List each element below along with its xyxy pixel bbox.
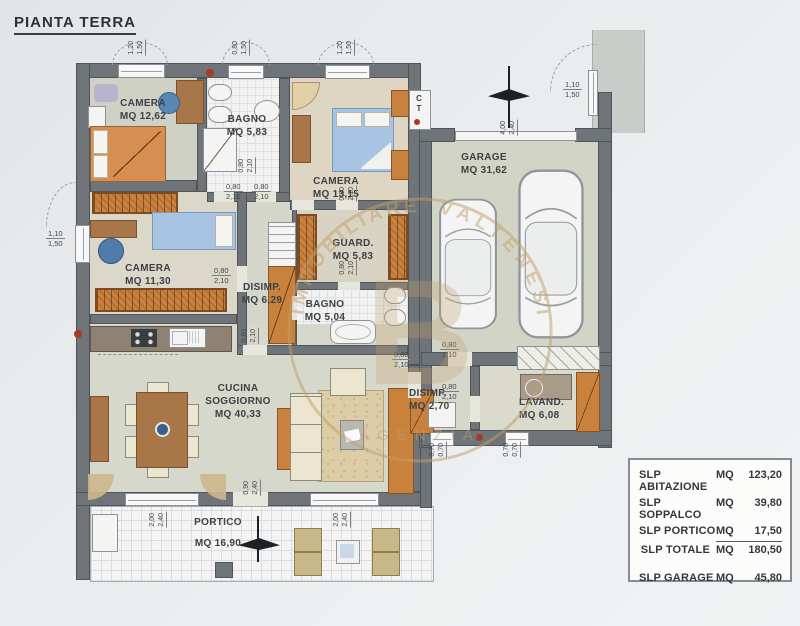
dimension-label: 0,802,10 — [240, 328, 259, 344]
room-label-disimp-629: DISIMP. MQ 6,29 — [237, 281, 287, 307]
room-label-bagno-583: BAGNO MQ 5,83 — [210, 113, 284, 139]
ct-room-label: C T — [409, 94, 429, 114]
garage-stair-hatch — [517, 346, 600, 370]
window — [310, 493, 379, 506]
room-area: MQ 13,15 — [293, 188, 379, 201]
portico-pillar — [215, 562, 233, 578]
desk — [292, 115, 311, 163]
room-label-camera-1315: CAMERA MQ 13,15 — [293, 175, 379, 201]
pillow — [336, 112, 362, 127]
table-centerpiece — [155, 422, 170, 437]
nightstand — [391, 90, 409, 117]
table-row-total: SLP TOTALE MQ 180,50 — [639, 541, 782, 556]
window-swing-arc — [46, 182, 75, 227]
gate — [588, 70, 598, 116]
ct-c: C — [409, 94, 429, 104]
table-row: SLP SOPPALCO MQ 39,80 — [639, 497, 782, 521]
chair — [187, 436, 199, 458]
room-area: MQ 16,90 — [180, 533, 256, 554]
bed-double-icon — [90, 126, 166, 182]
slp-label: SLP PORTICO — [639, 525, 716, 537]
counter-dashed-line — [98, 354, 178, 355]
room-name: GARAGE — [441, 151, 527, 164]
sink-drainer — [189, 331, 201, 343]
room-area: MQ 5,04 — [288, 311, 362, 324]
wardrobe-icon — [388, 214, 408, 280]
kitchen-sink-icon — [169, 328, 206, 348]
room-area: MQ 40,33 — [194, 408, 282, 421]
dimension-label: 0,802,10 — [338, 260, 357, 276]
entry-arrow-icon — [488, 89, 530, 101]
wall — [90, 314, 237, 324]
dimension-label: 1,201,50 — [336, 40, 355, 56]
door-opening — [470, 396, 480, 422]
pillow — [364, 112, 390, 127]
pillow — [215, 215, 233, 247]
slp-unit: MQ — [716, 469, 740, 481]
room-name: DISIMP. — [237, 281, 287, 294]
dimension-label: 0,802,10 — [252, 182, 271, 201]
pillow — [93, 155, 108, 178]
dimension-label: 0,802,10 — [237, 158, 256, 174]
slp-label: SLP SOPPALCO — [639, 497, 716, 521]
table-row: SLP ABITAZIONE MQ 123,20 — [639, 469, 782, 493]
room-name: CAMERA — [105, 262, 191, 275]
kitchen-counter — [90, 326, 232, 352]
room-area: MQ 31,62 — [441, 164, 527, 177]
dimension-label: 2,002,40 — [148, 512, 167, 528]
window — [75, 225, 90, 263]
table-row: SLP GARAGE MQ 45,80 — [639, 572, 782, 584]
slp-value: 45,80 — [740, 572, 782, 584]
cabinet — [576, 372, 600, 432]
toilet-icon — [208, 84, 232, 101]
outdoor-armchair — [372, 528, 400, 576]
wardrobe-icon — [92, 192, 178, 214]
slp-label: SLP GARAGE — [639, 572, 716, 584]
armchair-icon — [330, 368, 366, 396]
dimension-label: 1,201,50 — [127, 40, 146, 56]
toilet-icon — [384, 287, 406, 304]
page-title: PIANTA TERRA — [14, 14, 136, 35]
staircase-icon — [268, 222, 296, 268]
window — [228, 65, 264, 79]
window — [325, 65, 370, 79]
slp-unit: MQ — [716, 541, 740, 556]
slp-value: 123,20 — [740, 469, 782, 481]
room-name: CAMERA — [100, 97, 186, 110]
slp-value: 39,80 — [740, 497, 782, 509]
ct-t: T — [409, 104, 429, 114]
car-icon — [437, 196, 499, 332]
wall — [598, 92, 612, 448]
dimension-label: 1,101,50 — [46, 229, 65, 248]
dimension-label: 4,002,40 — [499, 120, 518, 136]
desk — [90, 220, 137, 238]
sideboard — [90, 396, 109, 462]
bed-double-icon — [332, 108, 394, 172]
slp-value: 17,50 — [740, 525, 782, 537]
door-opening — [292, 200, 314, 210]
door-opening — [243, 345, 267, 355]
room-label-portico: PORTICO MQ 16,90 — [180, 512, 256, 554]
door-opening — [338, 282, 360, 290]
table-top — [340, 544, 354, 558]
window — [118, 64, 165, 78]
slp-unit: MQ — [716, 525, 740, 537]
wardrobe-icon — [297, 214, 317, 280]
slp-unit: MQ — [716, 497, 740, 509]
bidet-icon — [384, 309, 406, 326]
wall — [419, 128, 455, 142]
blanket-fold — [361, 143, 391, 169]
pillow — [93, 130, 108, 154]
dimension-label: 0,902,40 — [242, 480, 261, 496]
room-name: CAMERA — [293, 175, 379, 188]
marker-dot — [414, 119, 420, 125]
floor-plan-photo: PIANTA TERRA — [0, 0, 800, 626]
room-name: PORTICO — [180, 512, 256, 533]
dimension-label: 0,802,10 — [392, 350, 411, 369]
slp-unit: MQ — [716, 572, 740, 584]
room-name: BAGNO — [210, 113, 284, 126]
washer-drum — [525, 379, 543, 397]
marker-dot — [74, 330, 82, 338]
slp-summary-table: SLP ABITAZIONE MQ 123,20 SLP SOPPALCO MQ… — [628, 458, 792, 582]
room-label-garage: GARAGE MQ 31,62 — [441, 151, 527, 177]
room-name: BAGNO — [288, 298, 362, 311]
dimension-label: 2,002,40 — [332, 512, 351, 528]
room-name: SOGGIORNO — [194, 395, 282, 408]
coffee-table — [340, 420, 364, 450]
slp-label: SLP ABITAZIONE — [639, 469, 716, 493]
marker-dot — [476, 434, 483, 441]
room-label-lavanderia: LAVAND. MQ 6,08 — [519, 396, 575, 422]
dimension-label: 1,101,50 — [563, 80, 582, 99]
stove-icon — [131, 329, 157, 347]
room-name: GUARD. — [316, 237, 390, 250]
room-area: MQ 12,62 — [100, 110, 186, 123]
dimension-label: 0,700,70 — [428, 442, 447, 458]
desk-chair — [98, 238, 124, 264]
dimension-label: 0,802,10 — [212, 266, 231, 285]
room-label-camera-1130: CAMERA MQ 11,30 — [105, 262, 191, 288]
marker-dot — [206, 69, 214, 77]
dimension-label: 0,802,10 — [338, 186, 357, 202]
window — [125, 493, 199, 506]
bed-single-icon — [152, 212, 236, 250]
slp-value: 180,50 — [740, 541, 782, 556]
wall — [279, 78, 290, 200]
bench — [92, 514, 118, 552]
sink-basin — [172, 331, 188, 345]
nightstand — [391, 150, 409, 180]
wardrobe-icon — [95, 288, 227, 312]
room-name: LAVAND. — [519, 396, 575, 409]
tub-inner — [335, 324, 371, 340]
slp-label: SLP TOTALE — [639, 544, 716, 556]
magazine — [343, 427, 362, 443]
wall — [575, 128, 612, 142]
room-area: MQ 2,70 — [409, 400, 459, 413]
room-label-camera-12: CAMERA MQ 12,62 — [100, 97, 186, 123]
outdoor-armchair — [294, 528, 322, 576]
blanket-fold — [113, 131, 161, 177]
sofa-icon — [290, 393, 322, 481]
dimension-label: 0,801,50 — [231, 40, 250, 56]
room-area: MQ 5,83 — [210, 126, 284, 139]
room-area: MQ 6,29 — [237, 294, 287, 307]
table-row: SLP PORTICO MQ 17,50 — [639, 525, 782, 537]
room-label-bagno-504: BAGNO MQ 5,04 — [288, 298, 362, 324]
dimension-label: 0,802,10 — [224, 182, 243, 201]
outdoor-table — [336, 540, 360, 564]
room-label-cucina-soggiorno: CUCINA SOGGIORNO MQ 40,33 — [194, 382, 282, 421]
room-name: CUCINA — [194, 382, 282, 395]
car-icon — [516, 166, 586, 342]
room-area: MQ 6,08 — [519, 409, 575, 422]
dimension-label: 0,802,10 — [440, 340, 459, 359]
dimension-label: 0,700,70 — [502, 442, 521, 458]
room-area: MQ 11,30 — [105, 275, 191, 288]
dimension-label: 0,802,10 — [440, 382, 459, 401]
